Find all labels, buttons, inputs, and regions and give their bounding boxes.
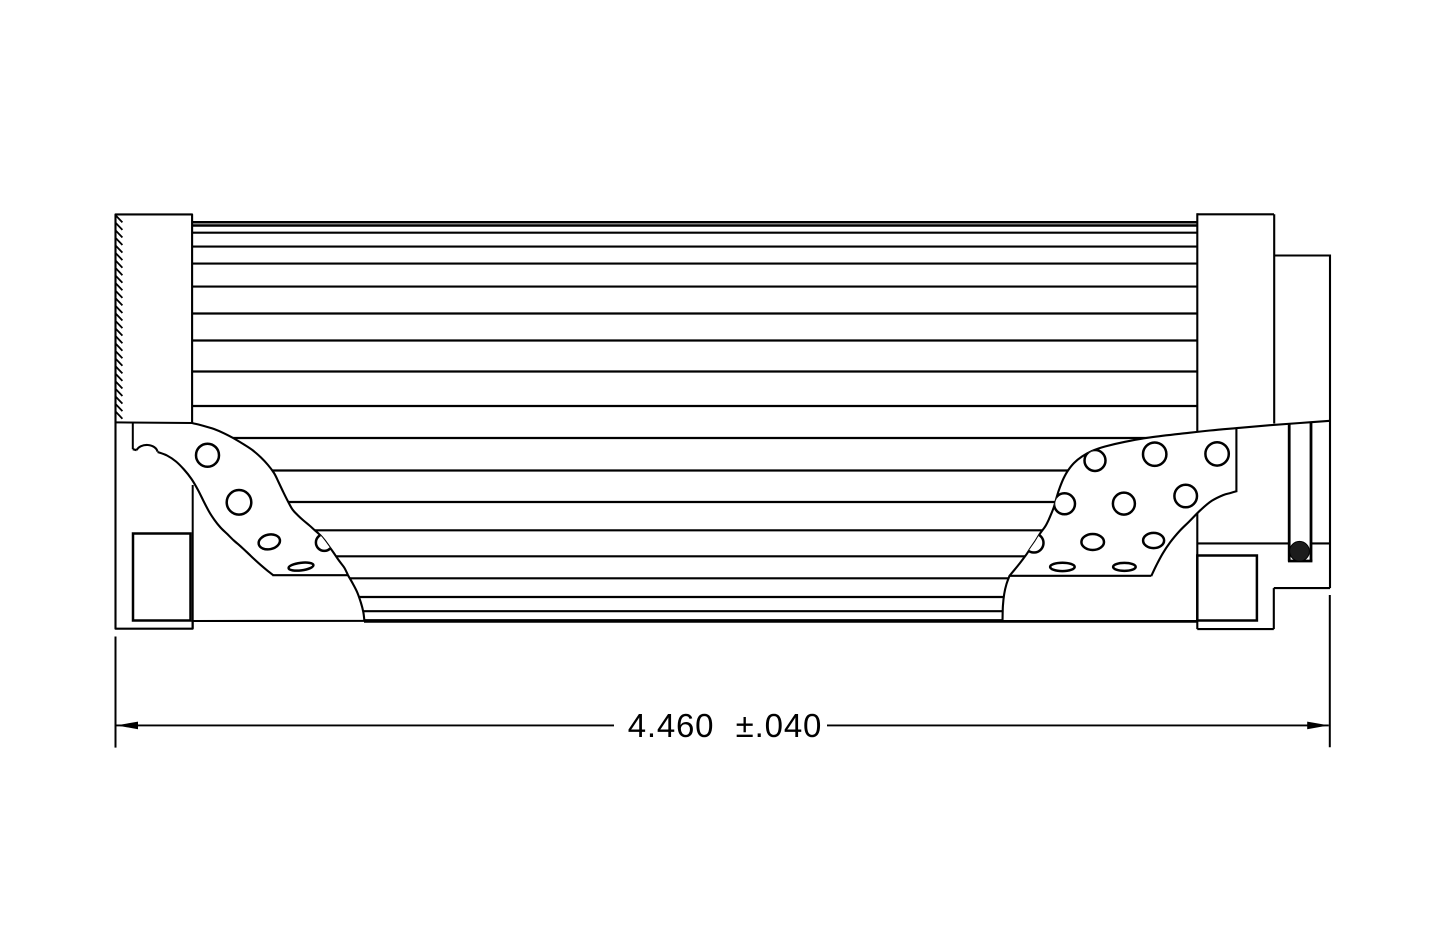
- svg-text:4.460: 4.460: [628, 707, 714, 744]
- svg-text:±.040: ±.040: [736, 707, 822, 744]
